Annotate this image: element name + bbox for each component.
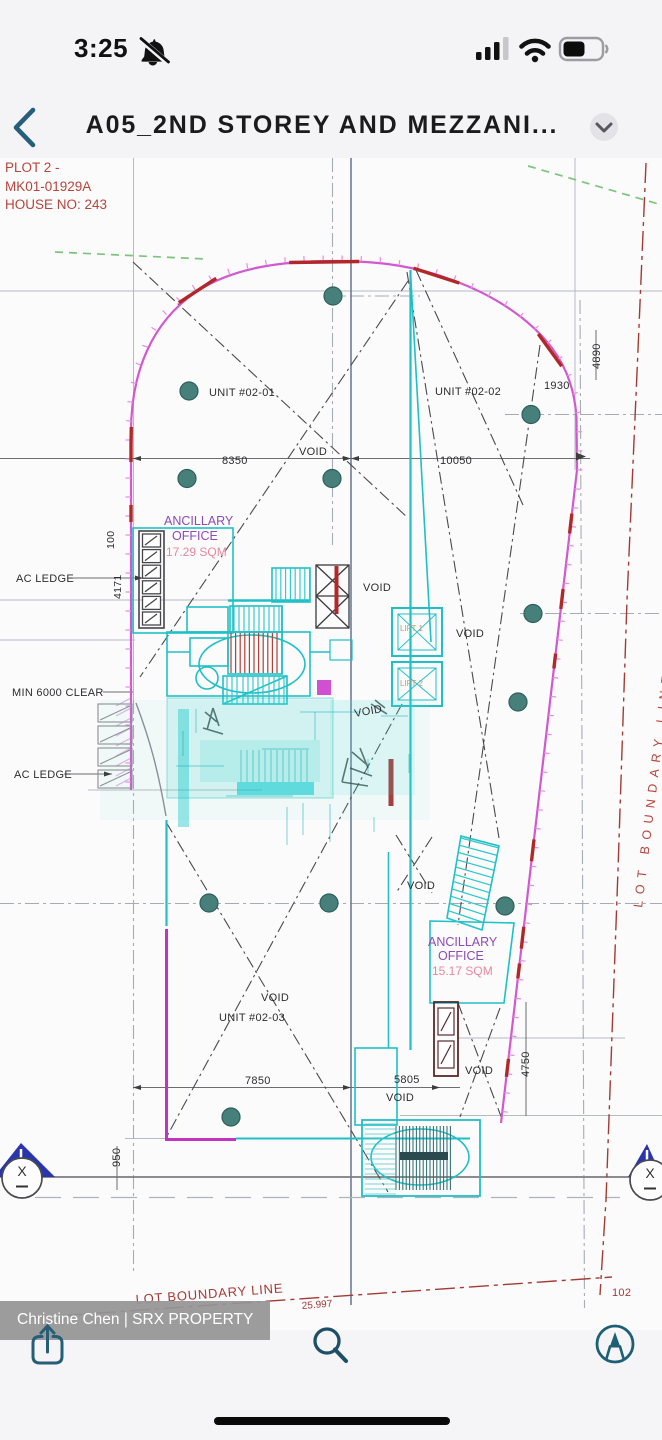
svg-text:VOID: VOID [465, 1065, 493, 1077]
svg-text:10050: 10050 [440, 455, 472, 467]
svg-text:UNIT #02-01: UNIT #02-01 [209, 387, 275, 399]
svg-text:4750: 4750 [520, 1051, 532, 1077]
svg-text:LIFT 2: LIFT 2 [400, 679, 424, 688]
svg-text:VOID: VOID [456, 628, 484, 640]
svg-text:1930: 1930 [544, 380, 570, 392]
svg-text:AC LEDGE: AC LEDGE [14, 769, 72, 781]
svg-text:ANCILLARY: ANCILLARY [428, 935, 498, 949]
svg-text:HOUSE NO: 243: HOUSE NO: 243 [5, 197, 107, 212]
svg-text:PLOT 2 -: PLOT 2 - [5, 160, 60, 175]
svg-text:102: 102 [612, 1287, 631, 1299]
svg-text:X: X [17, 1163, 27, 1179]
svg-text:X: X [645, 1165, 655, 1181]
svg-text:4171: 4171 [112, 574, 124, 599]
svg-text:8350: 8350 [222, 455, 248, 467]
svg-text:17.29 SQM: 17.29 SQM [166, 545, 227, 559]
svg-text:950: 950 [111, 1148, 123, 1167]
svg-text:ANCILLARY: ANCILLARY [164, 514, 234, 528]
svg-text:AC LEDGE: AC LEDGE [16, 573, 74, 585]
svg-text:VOID: VOID [261, 992, 289, 1004]
svg-text:VOID: VOID [363, 582, 391, 594]
svg-text:15.17 SQM: 15.17 SQM [432, 964, 493, 978]
svg-text:VOID: VOID [386, 1092, 414, 1104]
svg-text:OFFICE: OFFICE [438, 949, 484, 963]
svg-text:LOT BOUNDARY LINE: LOT BOUNDARY LINE [631, 669, 662, 909]
svg-text:VOID: VOID [407, 880, 435, 892]
svg-text:5805: 5805 [394, 1074, 420, 1086]
svg-text:100: 100 [105, 531, 117, 549]
svg-text:MIN 6000 CLEAR: MIN 6000 CLEAR [12, 687, 104, 699]
svg-text:UNIT #02-02: UNIT #02-02 [435, 386, 501, 398]
svg-text:OFFICE: OFFICE [172, 529, 218, 543]
svg-text:7850: 7850 [245, 1075, 271, 1087]
svg-text:MK01-01929A: MK01-01929A [5, 179, 91, 194]
svg-text:4890: 4890 [591, 343, 603, 369]
svg-text:VOID: VOID [299, 446, 327, 458]
svg-text:LIFT 1: LIFT 1 [400, 624, 424, 633]
svg-text:UNIT #02-03: UNIT #02-03 [219, 1012, 285, 1024]
svg-text:25.997: 25.997 [301, 1299, 333, 1312]
